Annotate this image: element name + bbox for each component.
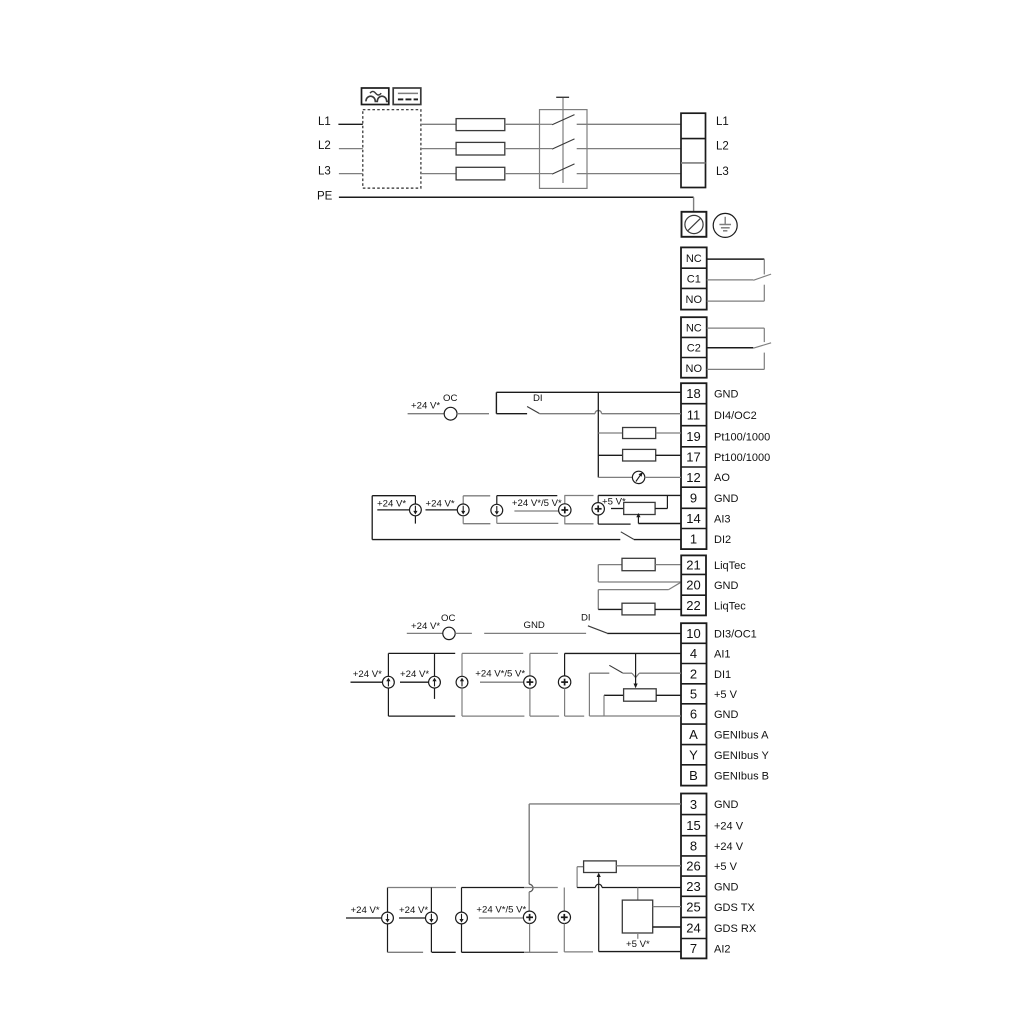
svg-text:GENIbus B: GENIbus B [714,770,769,782]
svg-text:DI: DI [533,393,543,404]
svg-text:+24 V: +24 V [714,820,744,832]
svg-text:22: 22 [686,598,700,613]
svg-text:+5 V*: +5 V* [602,496,626,507]
svg-text:Y: Y [689,747,698,762]
svg-text:DI2: DI2 [714,534,731,546]
svg-text:NC: NC [686,322,702,334]
svg-text:26: 26 [686,859,700,874]
svg-text:GND: GND [714,580,739,592]
svg-text:+24 V*: +24 V* [377,498,406,509]
svg-text:DI: DI [581,612,591,623]
svg-text:C1: C1 [687,273,701,285]
svg-text:10: 10 [686,626,700,641]
svg-text:7: 7 [690,941,697,956]
svg-text:GND: GND [714,709,739,721]
svg-text:AI3: AI3 [714,514,731,526]
svg-text:AO: AO [714,472,730,484]
svg-text:+5 V*: +5 V* [626,939,650,950]
svg-text:NO: NO [686,294,703,306]
svg-text:+24 V*: +24 V* [399,905,428,916]
svg-text:2: 2 [690,666,697,681]
svg-text:AI2: AI2 [714,944,731,956]
svg-text:LiqTec: LiqTec [714,560,746,572]
svg-text:Pt100/1000: Pt100/1000 [714,431,770,443]
svg-text:+24 V*: +24 V* [400,669,429,680]
svg-text:PE: PE [317,190,333,202]
svg-text:15: 15 [686,818,700,833]
svg-text:23: 23 [686,879,700,894]
svg-text:24: 24 [686,921,700,936]
svg-text:3: 3 [690,797,697,812]
svg-text:12: 12 [686,470,700,485]
svg-text:1: 1 [690,532,697,547]
svg-text:4: 4 [690,646,697,661]
svg-text:GND: GND [714,799,739,811]
svg-text:+5 V: +5 V [714,689,738,701]
svg-text:+24 V*/5 V*: +24 V*/5 V* [512,498,562,509]
svg-text:GND: GND [714,389,739,401]
svg-text:L1: L1 [716,116,729,128]
svg-text:+5 V: +5 V [714,861,738,873]
svg-text:8: 8 [690,839,697,854]
svg-text:+24 V*: +24 V* [426,498,455,509]
svg-text:20: 20 [686,578,700,593]
svg-text:+24 V*: +24 V* [353,669,382,680]
svg-text:OC: OC [443,393,457,404]
svg-text:Pt100/1000: Pt100/1000 [714,452,770,464]
svg-text:14: 14 [686,511,700,526]
svg-text:LiqTec: LiqTec [714,600,746,612]
svg-text:A: A [689,727,698,742]
svg-text:GND: GND [714,881,739,893]
svg-text:+24 V*: +24 V* [411,400,440,411]
svg-text:L3: L3 [318,166,331,178]
svg-text:OC: OC [441,613,455,624]
svg-text:GND: GND [714,493,739,505]
svg-text:DI1: DI1 [714,669,731,681]
svg-text:GENIbus A: GENIbus A [714,729,769,741]
svg-text:6: 6 [690,707,697,722]
svg-text:GDS TX: GDS TX [714,902,755,914]
svg-text:+24 V*: +24 V* [411,621,440,632]
svg-text:19: 19 [686,429,700,444]
svg-text:L3: L3 [716,166,729,178]
svg-text:C2: C2 [687,343,701,355]
svg-text:NO: NO [686,363,703,375]
svg-text:GND: GND [524,620,545,631]
svg-text:L2: L2 [318,140,331,152]
svg-text:DI4/OC2: DI4/OC2 [714,410,757,422]
svg-text:GENIbus Y: GENIbus Y [714,750,769,762]
svg-text:11: 11 [687,407,701,422]
svg-text:+24 V: +24 V [714,841,744,853]
svg-text:25: 25 [686,900,700,915]
svg-text:L2: L2 [716,140,729,152]
svg-text:9: 9 [690,490,697,505]
svg-text:B: B [689,768,698,783]
svg-text:DI3/OC1: DI3/OC1 [714,628,757,640]
svg-text:21: 21 [686,558,700,573]
svg-text:17: 17 [686,450,700,465]
svg-text:5: 5 [690,687,697,702]
svg-text:+24 V*: +24 V* [351,905,380,916]
svg-text:18: 18 [686,386,700,401]
svg-text:AI1: AI1 [714,649,731,661]
svg-text:NC: NC [686,253,702,265]
svg-text:+24 V*/5 V*: +24 V*/5 V* [475,669,525,680]
svg-text:GDS RX: GDS RX [714,923,757,935]
svg-text:L1: L1 [318,116,331,128]
svg-text:+24 V*/5 V*: +24 V*/5 V* [476,905,526,916]
